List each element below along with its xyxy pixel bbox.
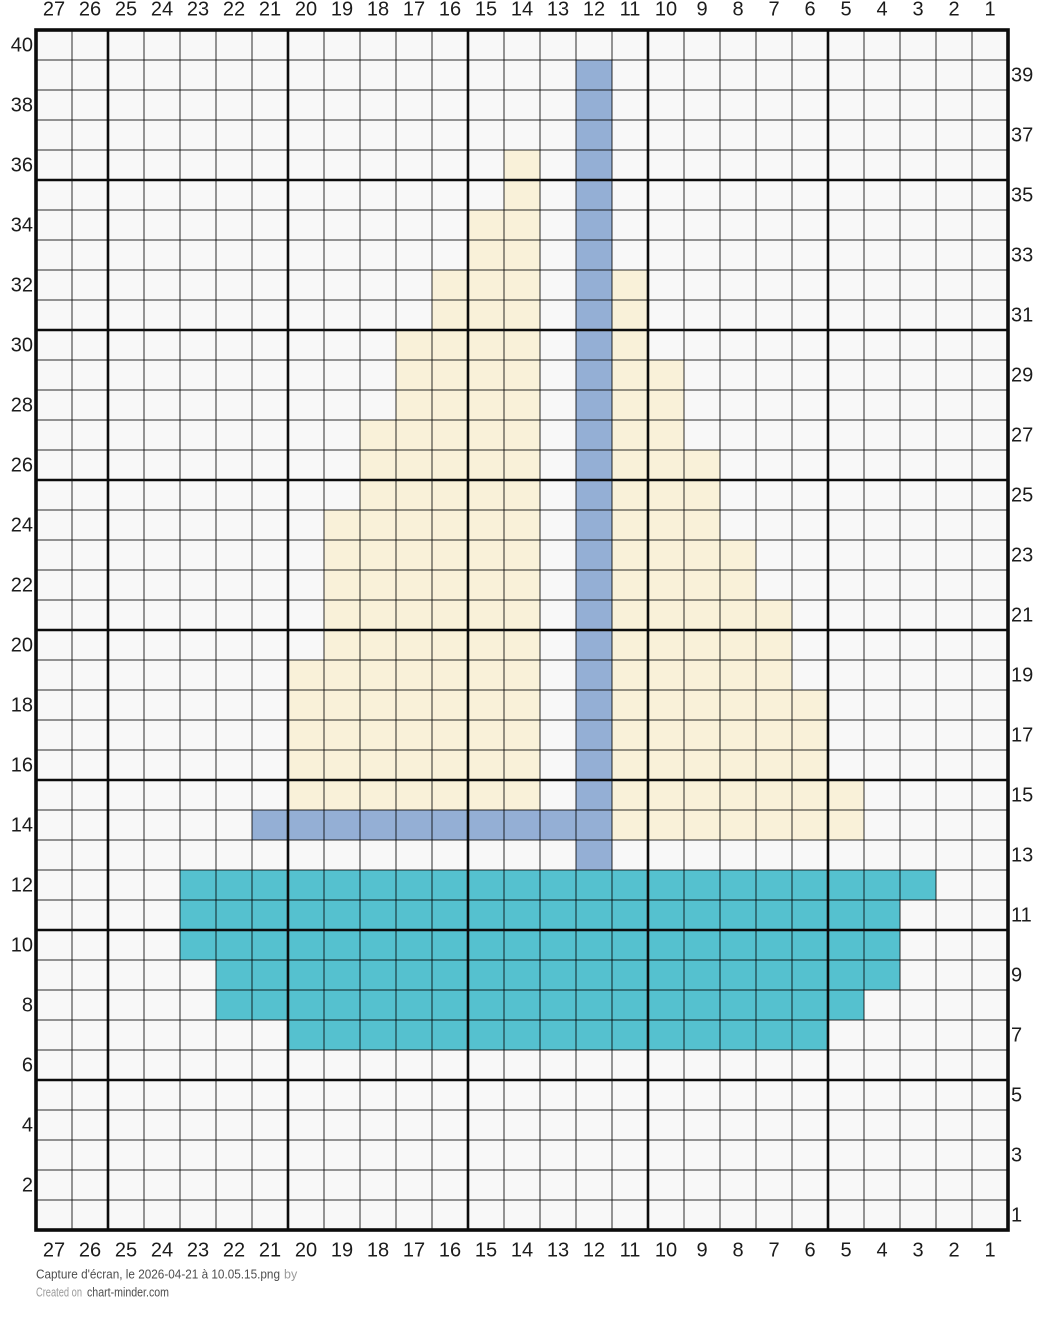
svg-text:6: 6	[804, 0, 815, 21]
svg-text:3: 3	[912, 1240, 923, 1262]
svg-text:12: 12	[583, 0, 605, 21]
svg-text:30: 30	[11, 335, 33, 357]
svg-text:2: 2	[22, 1175, 33, 1197]
svg-text:20: 20	[295, 0, 317, 21]
svg-text:10: 10	[655, 0, 677, 21]
svg-text:15: 15	[475, 0, 497, 21]
svg-text:26: 26	[11, 455, 33, 477]
svg-text:19: 19	[1011, 665, 1033, 687]
svg-text:18: 18	[367, 0, 389, 21]
svg-text:38: 38	[11, 95, 33, 117]
svg-text:16: 16	[439, 0, 461, 21]
svg-text:15: 15	[475, 1240, 497, 1262]
svg-text:25: 25	[115, 0, 137, 21]
svg-text:27: 27	[43, 0, 65, 21]
svg-text:3: 3	[1011, 1145, 1022, 1167]
svg-text:24: 24	[151, 0, 173, 21]
svg-text:11: 11	[620, 1240, 641, 1262]
svg-text:10: 10	[11, 935, 33, 957]
svg-text:24: 24	[11, 515, 33, 537]
svg-text:40: 40	[11, 35, 33, 57]
svg-text:14: 14	[511, 0, 533, 21]
svg-text:27: 27	[1011, 425, 1033, 447]
svg-text:4: 4	[876, 1240, 887, 1262]
svg-text:22: 22	[223, 1240, 245, 1262]
svg-text:14: 14	[11, 815, 33, 837]
svg-text:5: 5	[840, 1240, 851, 1262]
svg-text:8: 8	[732, 0, 743, 21]
svg-text:25: 25	[1011, 485, 1033, 507]
svg-text:27: 27	[43, 1240, 65, 1262]
svg-text:13: 13	[1011, 845, 1033, 867]
svg-text:16: 16	[11, 755, 33, 777]
svg-text:9: 9	[1011, 965, 1022, 987]
svg-text:2: 2	[948, 0, 959, 21]
svg-text:19: 19	[331, 1240, 353, 1262]
svg-text:4: 4	[876, 0, 887, 21]
svg-text:by: by	[284, 1268, 298, 1282]
svg-text:23: 23	[1011, 545, 1033, 567]
svg-text:6: 6	[22, 1055, 33, 1077]
svg-text:20: 20	[11, 635, 33, 657]
svg-text:13: 13	[547, 1240, 569, 1262]
svg-text:Capture d'écran, le 2026-04-21: Capture d'écran, le 2026-04-21 à 10.05.1…	[36, 1268, 280, 1282]
svg-text:37: 37	[1011, 125, 1033, 147]
svg-text:21: 21	[259, 0, 281, 21]
svg-text:28: 28	[11, 395, 33, 417]
svg-text:1: 1	[984, 1240, 995, 1262]
svg-text:8: 8	[22, 995, 33, 1017]
svg-text:34: 34	[11, 215, 33, 237]
svg-text:25: 25	[115, 1240, 137, 1262]
svg-text:7: 7	[1011, 1025, 1022, 1047]
svg-text:9: 9	[696, 1240, 707, 1262]
svg-text:23: 23	[187, 1240, 209, 1262]
svg-text:10: 10	[655, 1240, 677, 1262]
svg-text:24: 24	[151, 1240, 173, 1262]
svg-text:17: 17	[1011, 725, 1033, 747]
svg-text:16: 16	[439, 1240, 461, 1262]
svg-text:22: 22	[11, 575, 33, 597]
svg-text:26: 26	[79, 0, 101, 21]
svg-text:15: 15	[1011, 785, 1033, 807]
svg-text:35: 35	[1011, 185, 1033, 207]
svg-text:23: 23	[187, 0, 209, 21]
svg-text:9: 9	[696, 0, 707, 21]
svg-text:chart-minder.com: chart-minder.com	[87, 1286, 169, 1300]
svg-text:1: 1	[984, 0, 995, 21]
svg-text:20: 20	[295, 1240, 317, 1262]
svg-text:12: 12	[583, 1240, 605, 1262]
svg-text:7: 7	[768, 1240, 779, 1262]
svg-text:13: 13	[547, 0, 569, 21]
svg-text:36: 36	[11, 155, 33, 177]
svg-text:8: 8	[732, 1240, 743, 1262]
svg-text:1: 1	[1011, 1205, 1022, 1227]
svg-text:4: 4	[22, 1115, 33, 1137]
svg-text:14: 14	[511, 1240, 533, 1262]
svg-text:17: 17	[403, 0, 425, 21]
svg-text:39: 39	[1011, 65, 1033, 87]
svg-text:5: 5	[1011, 1085, 1022, 1107]
svg-text:7: 7	[768, 0, 779, 21]
svg-text:3: 3	[912, 0, 923, 21]
svg-text:11: 11	[620, 0, 641, 21]
svg-text:29: 29	[1011, 365, 1033, 387]
svg-text:12: 12	[11, 875, 33, 897]
svg-text:18: 18	[367, 1240, 389, 1262]
svg-text:31: 31	[1011, 305, 1033, 327]
svg-text:21: 21	[259, 1240, 281, 1262]
svg-text:18: 18	[11, 695, 33, 717]
svg-text:Created on: Created on	[36, 1286, 82, 1300]
svg-text:26: 26	[79, 1240, 101, 1262]
svg-text:17: 17	[403, 1240, 425, 1262]
svg-text:21: 21	[1011, 605, 1033, 627]
svg-text:5: 5	[840, 0, 851, 21]
svg-text:2: 2	[948, 1240, 959, 1262]
svg-text:19: 19	[331, 0, 353, 21]
svg-text:6: 6	[804, 1240, 815, 1262]
svg-text:22: 22	[223, 0, 245, 21]
svg-text:11: 11	[1011, 905, 1032, 927]
svg-text:32: 32	[11, 275, 33, 297]
svg-text:33: 33	[1011, 245, 1033, 267]
